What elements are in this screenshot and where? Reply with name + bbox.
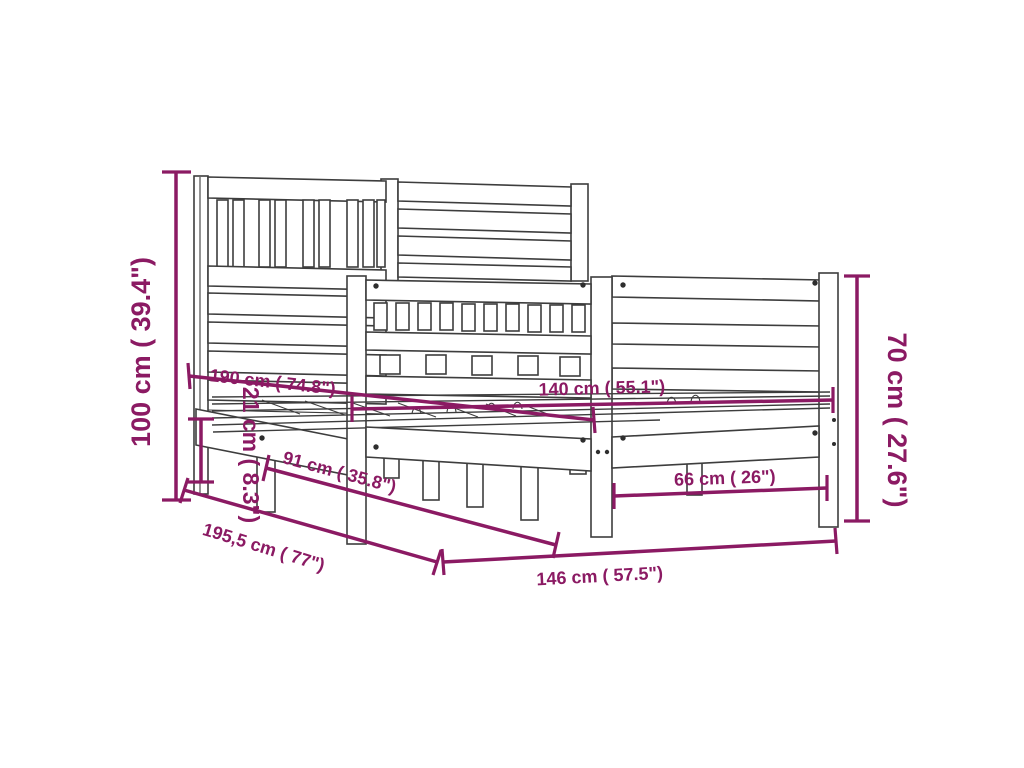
dimension-frame-width: 146 cm ( 57.5") — [442, 528, 837, 589]
dimension-label: 146 cm ( 57.5") — [536, 563, 663, 590]
dimension-headboard-height: 100 cm ( 39.4") — [126, 172, 191, 500]
dimension-label: 70 cm ( 27.6") — [882, 333, 912, 508]
dimension-label: 195,5 cm ( 77") — [200, 519, 327, 575]
dimension-label: 21 cm ( 8.3") — [238, 387, 264, 523]
dimension-label: 100 cm ( 39.4") — [126, 257, 156, 447]
bed-frame-dimension-diagram: 100 cm ( 39.4") 21 cm ( 8.3") 190 cm ( 7… — [0, 0, 1024, 768]
headboard-slats — [217, 200, 385, 267]
dimension-label: 66 cm ( 26") — [674, 466, 776, 490]
dimension-foot-leg-spacing: 66 cm ( 26") — [614, 466, 827, 509]
footboard-slat-row-upper — [374, 303, 585, 332]
dimension-label: 140 cm ( 55.1") — [538, 376, 665, 399]
diagram-canvas: 100 cm ( 39.4") 21 cm ( 8.3") 190 cm ( 7… — [0, 0, 1024, 768]
dimension-footboard-height: 70 cm ( 27.6") — [844, 276, 912, 521]
dimension-frame-length: 195,5 cm ( 77") — [180, 478, 441, 575]
headboard-back-panel — [381, 179, 588, 281]
footboard-slat-row-lower — [380, 355, 580, 376]
